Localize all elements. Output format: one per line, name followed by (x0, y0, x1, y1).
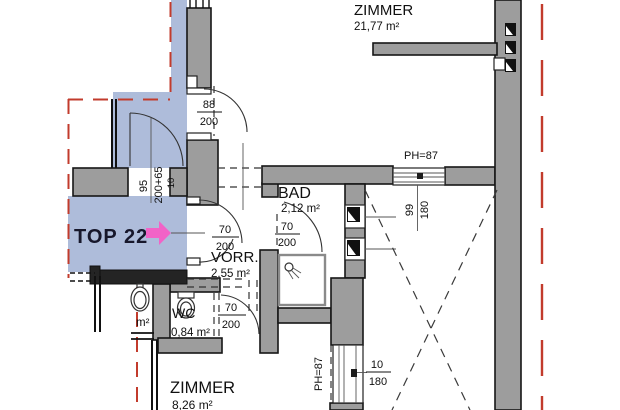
dim-door-wc-height: 200 (222, 319, 240, 331)
room-name-zimmer-top: ZIMMER (354, 2, 413, 19)
room-area-bad: 2,12 m² (281, 203, 320, 215)
dim-door-entry-width: 70 (219, 224, 231, 236)
dim-wall-thickness: 10 (166, 178, 177, 189)
door-top-88 (187, 86, 247, 140)
top-window-marks (190, 0, 209, 8)
dim-landing-door-height: 200+65 (153, 166, 165, 203)
window-bottom (331, 345, 367, 403)
parapet-bottom-label: PH=87 (313, 357, 325, 391)
unit-label: TOP 22 (74, 226, 148, 248)
dim-window-right-width: 99 (404, 204, 416, 216)
column-marker-icon (505, 59, 516, 72)
room-area-vorraum: 2,55 m² (211, 268, 250, 280)
dim-door-wc-width: 70 (225, 302, 237, 314)
column-marker-icon (505, 41, 516, 54)
dim-door-top-width: 88 (203, 99, 215, 111)
dim-window-bottom-height: 180 (369, 376, 387, 388)
room-area-zimmer-top: 21,77 m² (354, 21, 400, 33)
duct-marker-icon (347, 207, 360, 222)
room-name-wc: WC (172, 305, 195, 321)
floor-plan: TOP 22 ZIMMER 21,77 m² BAD 2,12 m² VORR.… (0, 0, 620, 410)
column-marker-icon (505, 23, 516, 36)
shower-tray (279, 255, 325, 305)
duct-marker-icon (347, 240, 360, 256)
dim-door-bad-height: 200 (278, 237, 296, 249)
room-area-cut-room: m² (136, 317, 150, 329)
room-name-bad: BAD (278, 185, 311, 202)
dim-door-bad-width: 70 (281, 221, 293, 233)
room-name-zimmer-bottom: ZIMMER (170, 379, 235, 397)
window-right-top (393, 168, 445, 231)
room-area-zimmer-bottom: 8,26 m² (172, 398, 213, 410)
dim-door-entry-height: 200 (216, 241, 234, 253)
dim-door-top-height: 200 (200, 116, 218, 128)
dim-window-bottom-width: 10 (371, 359, 383, 371)
parapet-top-label: PH=87 (404, 150, 438, 162)
dim-landing-door-width: 95 (138, 180, 150, 192)
sink-icon (131, 284, 149, 311)
dim-window-right-height: 180 (419, 201, 431, 219)
shaft-symbols (345, 23, 516, 260)
floor-plan-page: TOP 22 ZIMMER 21,77 m² BAD 2,12 m² VORR.… (0, 0, 620, 410)
room-area-wc: 0,84 m² (171, 327, 210, 339)
